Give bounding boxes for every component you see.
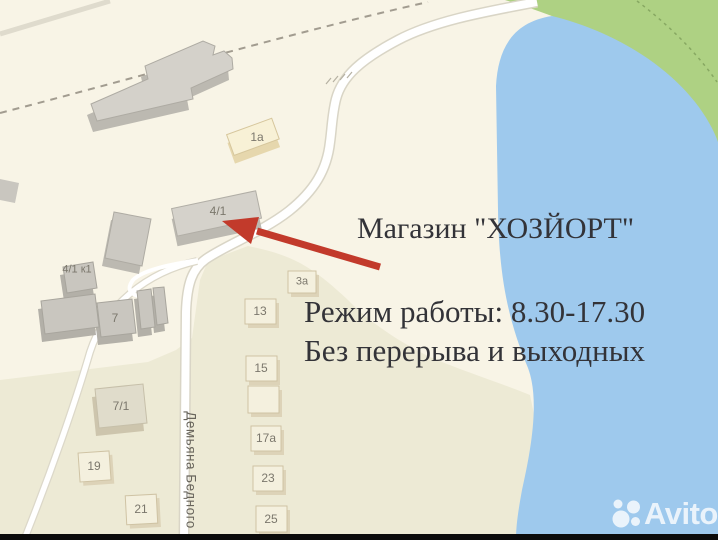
- building-label-3a: 3а: [296, 277, 308, 288]
- water-area: [496, 16, 718, 540]
- no-breaks-text: Без перерыва и выходных: [304, 333, 645, 369]
- building-label-7: 7: [112, 312, 119, 324]
- map-screenshot: 1а 4/1 4/1 к1 7 3а 13 7/1 15 17а 19 21 2…: [0, 0, 718, 540]
- working-hours-text: Режим работы: 8.30-17.30: [304, 294, 645, 330]
- building-label-23: 23: [261, 472, 274, 484]
- building-label-25: 25: [264, 513, 277, 525]
- building-label-1a: 1а: [250, 131, 263, 143]
- building-label-13: 13: [253, 305, 266, 317]
- shop-name-text: Магазин "ХОЗЙОРТ": [357, 212, 634, 246]
- building-label-21: 21: [134, 503, 147, 515]
- building-label-71: 7/1: [113, 400, 130, 412]
- bottom-border-bar: [0, 534, 718, 540]
- map-canvas: [0, 0, 718, 540]
- street-name-label: Демьяна Бедного: [184, 411, 199, 529]
- building-label-19: 19: [87, 460, 100, 472]
- building-label-17a: 17а: [256, 432, 276, 444]
- building-label-41: 4/1: [210, 205, 227, 217]
- avito-watermark-text: Avito: [644, 496, 718, 532]
- building-label-15: 15: [254, 362, 267, 374]
- building-label-41k1: 4/1 к1: [62, 265, 91, 276]
